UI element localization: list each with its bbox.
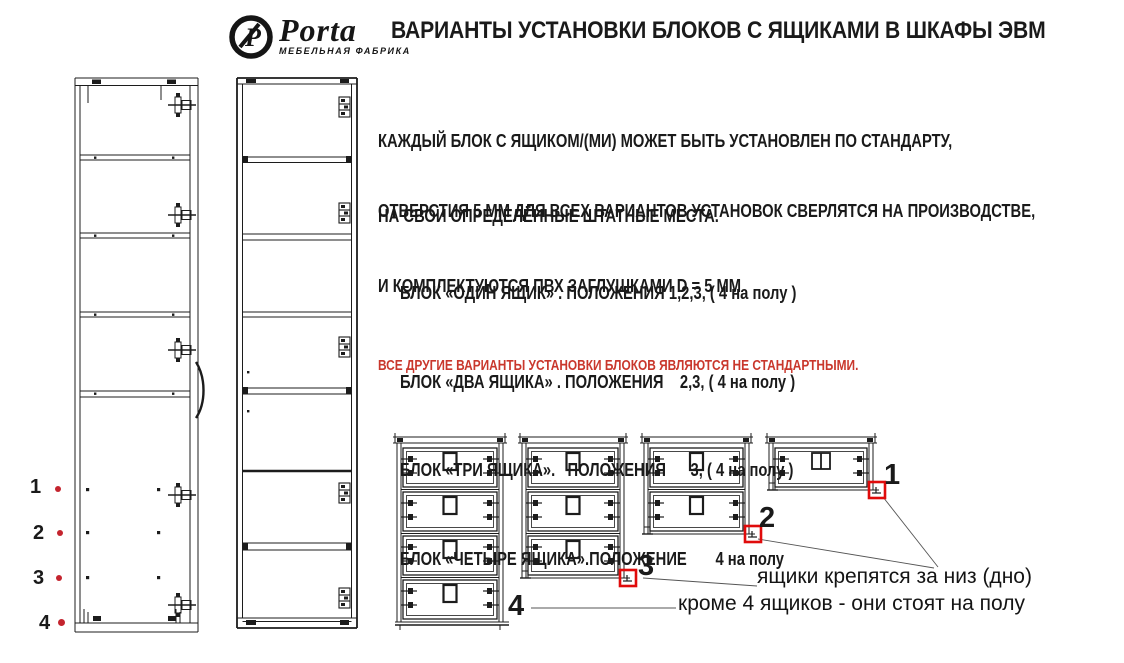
porta-emblem-icon: P <box>228 14 274 60</box>
logo: P Porta МЕБЕЛЬНАЯ ФАБРИКА <box>228 14 411 60</box>
hinge-icons <box>168 93 196 617</box>
brand-subtitle: МЕБЕЛЬНАЯ ФАБРИКА <box>279 46 411 56</box>
door-handle <box>196 362 204 418</box>
list-item: БЛОК «ОДИН ЯЩИК» . ПОЛОЖЕНИЯ 1,2,3, ( 4 … <box>400 279 796 309</box>
page-title: ВАРИАНТЫ УСТАНОВКИ БЛОКОВ С ЯЩИКАМИ В ШК… <box>391 17 1045 45</box>
position-dot-1 <box>55 486 61 492</box>
position-dot-4 <box>58 619 65 626</box>
position-dot-2 <box>57 530 63 536</box>
warning-text: ВСЕ ДРУГИЕ ВАРИАНТЫ УСТАНОВКИ БЛОКОВ ЯВЛ… <box>378 358 858 374</box>
position-marker-3: 3 <box>33 568 44 588</box>
cabinet-drawings <box>20 60 380 660</box>
note-line-2: кроме 4 ящиков - они стоят на полу <box>678 592 1025 616</box>
position-dot-3 <box>56 575 62 581</box>
block-label-2: 2 <box>759 504 775 533</box>
position-marker-4: 4 <box>39 613 50 633</box>
instruction-sheet: P Porta МЕБЕЛЬНАЯ ФАБРИКА ВАРИАНТЫ УСТАН… <box>0 0 1124 663</box>
position-marker-1: 1 <box>30 477 41 497</box>
hinge-plate-icons <box>339 97 350 608</box>
block-label-1: 1 <box>884 461 900 490</box>
emblem-letter: P <box>244 23 262 52</box>
drill-holes <box>86 157 174 580</box>
note-line-1: ящики крепятся за низ (дно) <box>757 565 1032 589</box>
block-label-3: 3 <box>638 552 654 581</box>
block-label-4: 4 <box>508 592 524 621</box>
position-marker-2: 2 <box>33 523 44 543</box>
